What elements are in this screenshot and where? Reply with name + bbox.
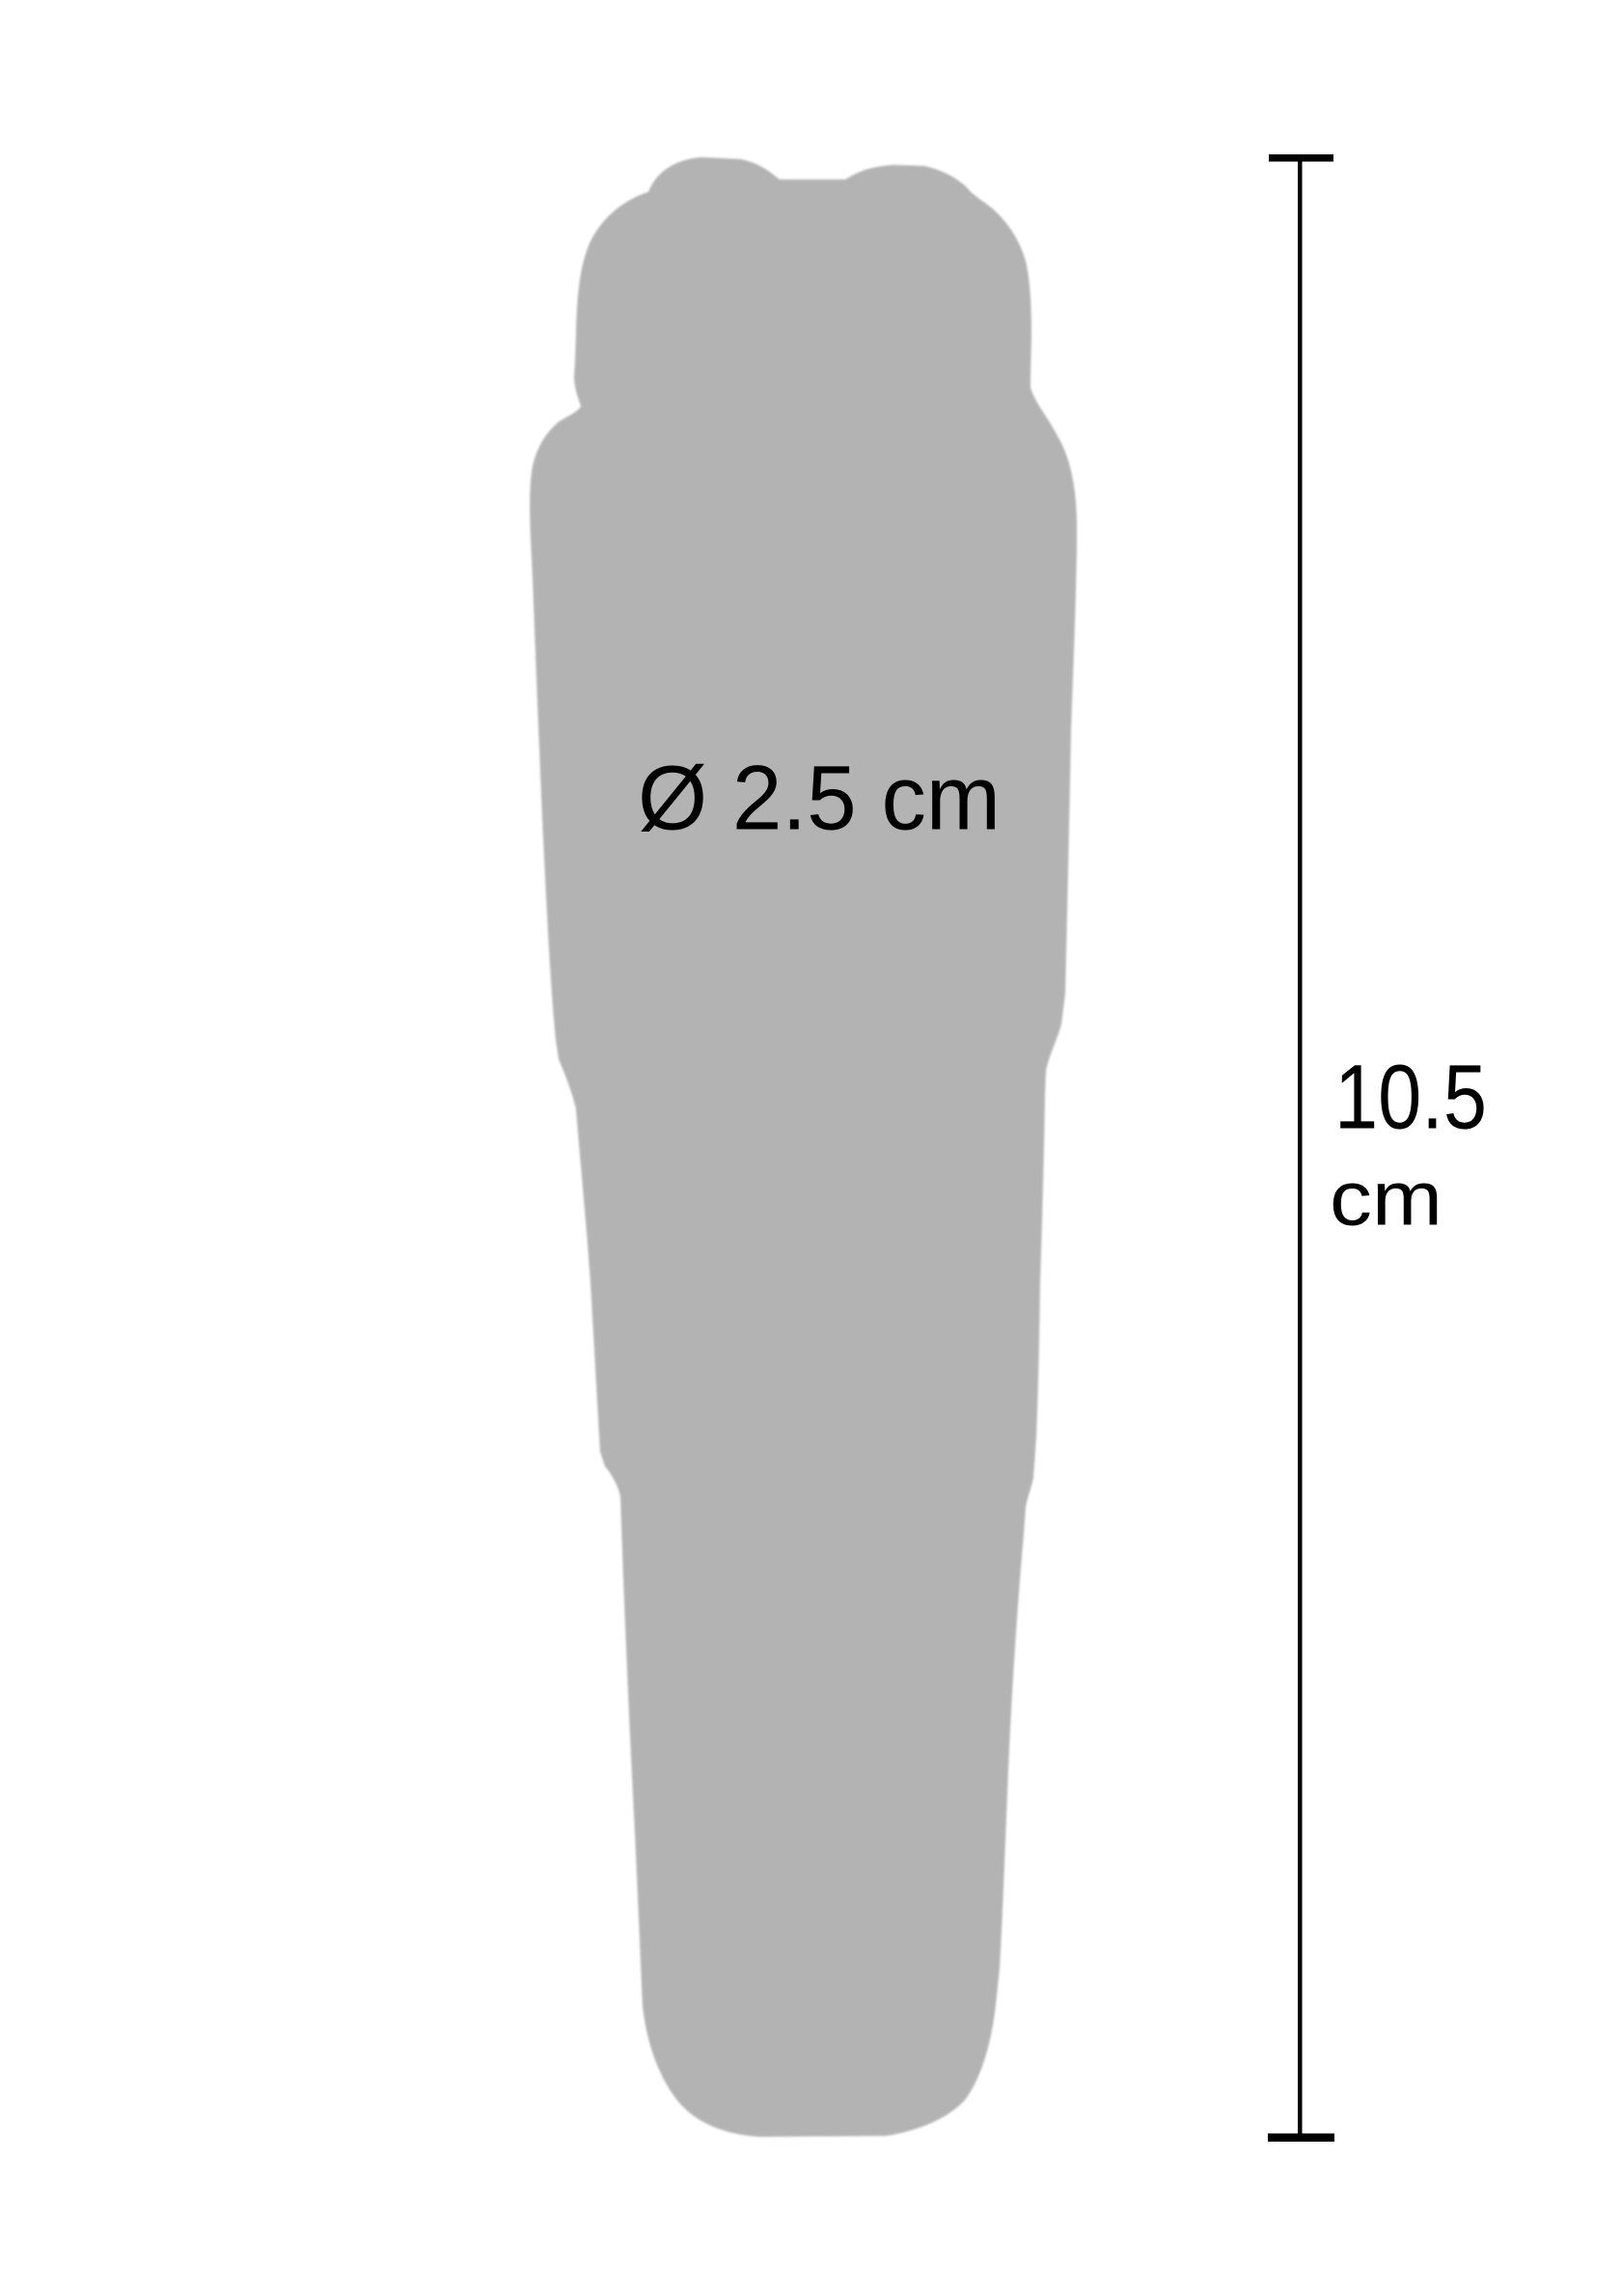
svg-text:Ø 2.5 cm: Ø 2.5 cm bbox=[638, 748, 1001, 850]
svg-text:cm: cm bbox=[1330, 1156, 1442, 1242]
svg-text:10.5: 10.5 bbox=[1334, 1047, 1487, 1149]
